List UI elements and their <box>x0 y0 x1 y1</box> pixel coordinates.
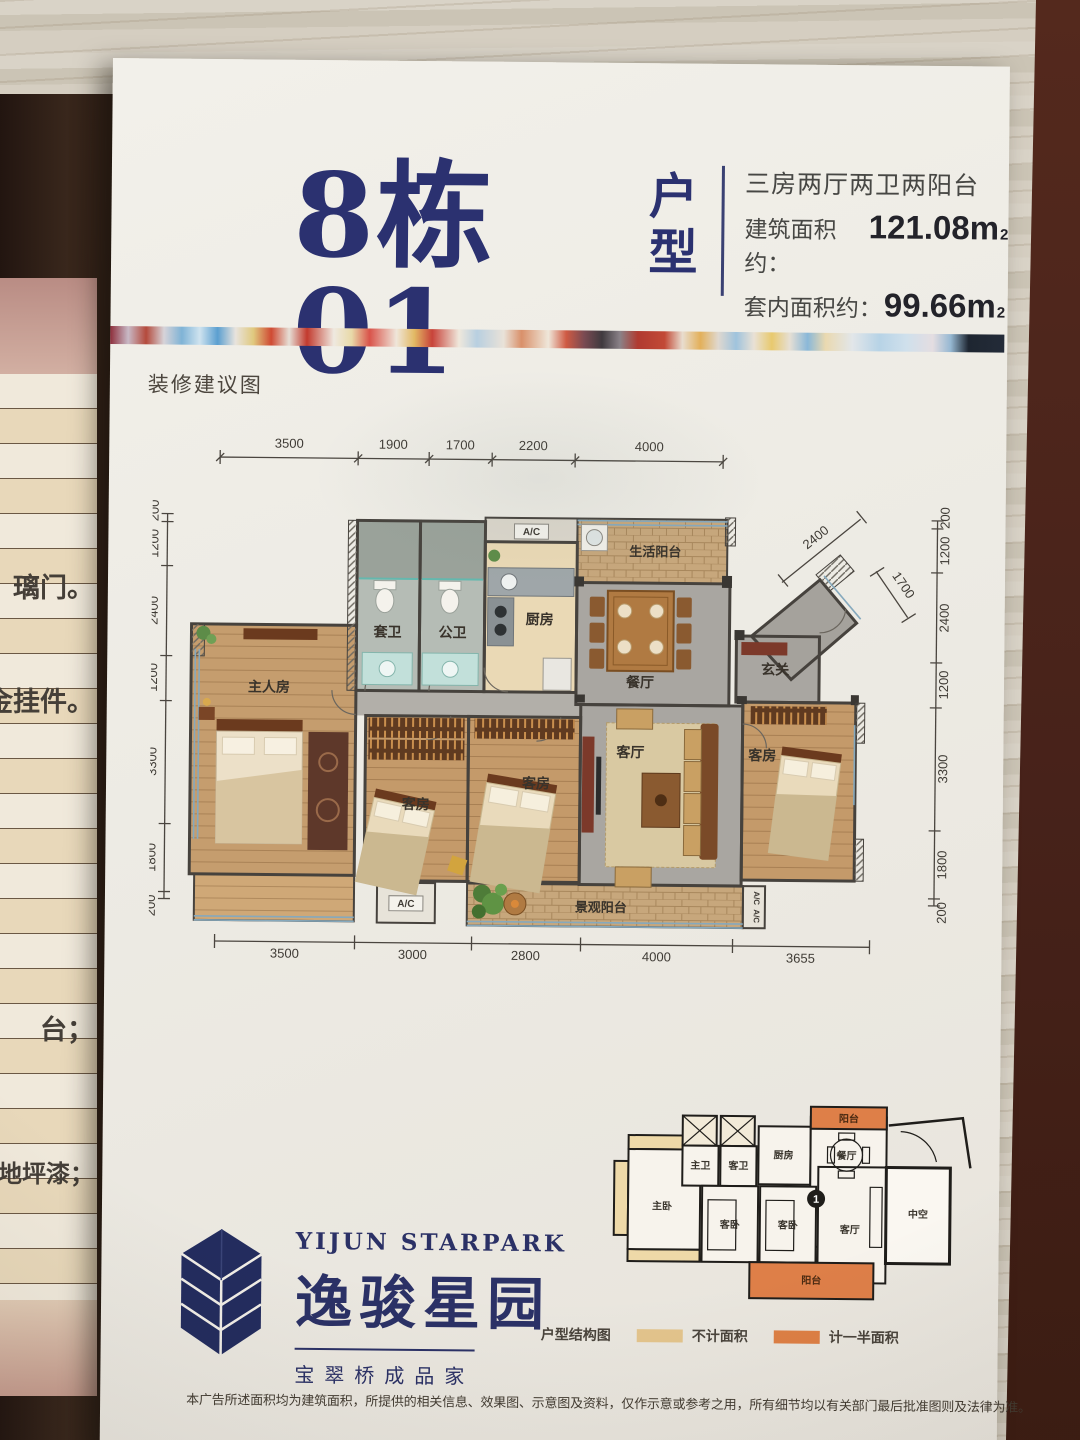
dim-label: 3500 <box>275 436 304 451</box>
spec-block: 三房两厅两卫两阳台 建筑面积约： 121.08m 2 套内面积约： 99.66m… <box>744 164 1009 326</box>
room-label-living: 客厅 <box>615 744 644 760</box>
dim-label: 2800 <box>511 948 540 963</box>
structure-inset: 1 阳台 阳台 主卧 客卧 客卧 客厅 中空 厨房 主卫 客卫 餐厅 <box>569 1100 995 1314</box>
room-label-master: 主人房 <box>248 678 290 694</box>
inset-label-balcony: 阳台 <box>839 1112 859 1125</box>
inset-label-living: 客厅 <box>839 1223 860 1236</box>
inset-label-guest-bath: 客卫 <box>727 1159 748 1172</box>
floor-plan: 主人房 客房 客房 客房 客厅 餐厅 厨房 套卫 公卫 玄关 生活阳台 景观阳台… <box>148 418 953 966</box>
dim-label: 1900 <box>379 437 408 452</box>
dims-right: 200 1200 2400 1200 3300 1800 200 <box>928 507 953 924</box>
unit-title-suffix: 户 型 <box>648 169 698 281</box>
adjacent-poster-strip: 璃门。 金挂件。 台； 地坪漆； <box>0 278 97 1396</box>
disclaimer-text: 本广告所述面积均为建筑面积，所提供的相关信息、效果图、示意图及资料，仅作示意或参… <box>186 1389 1016 1416</box>
unit-title-suffix-char: 户 <box>649 169 699 225</box>
brand-logo: YIJUN STARPARK 逸骏星园 宝翠桥成品家 <box>172 1227 567 1391</box>
spec-gross-value: 121.08m <box>869 208 1000 247</box>
room-label-service-balcony: 生活阳台 <box>629 544 681 559</box>
adjacent-poster-footer <box>0 1300 97 1396</box>
ac-label: A/C <box>752 891 761 905</box>
legend-title: 户型结构图 <box>541 1324 611 1345</box>
inset-label-dining: 餐厅 <box>835 1149 856 1162</box>
inset-label-void: 中空 <box>908 1208 928 1221</box>
dim-label: 1200 <box>148 663 160 692</box>
spec-inner-sup: 2 <box>997 304 1006 321</box>
logo-building-icon <box>173 1227 270 1358</box>
dim-label: 3000 <box>398 947 427 962</box>
unit-title: 8栋01 <box>292 158 640 393</box>
dim-label: 1200 <box>937 536 952 565</box>
dims-left: 200 1200 2400 1200 3300 1800 200 <box>148 499 173 916</box>
title-divider <box>721 166 725 296</box>
room-label-public-bath: 公卫 <box>438 624 466 640</box>
spec-inner-label: 套内面积约： <box>744 288 882 323</box>
dim-label: 200 <box>148 499 161 521</box>
legend-half-label: 计一半面积 <box>829 1327 899 1348</box>
spec-rooms: 三房两厅两卫两阳台 <box>745 164 1009 203</box>
inset-label-balcony: 阳台 <box>801 1274 821 1287</box>
room-label-dining: 餐厅 <box>625 674 654 690</box>
room-label-guest: 客房 <box>401 796 430 812</box>
inset-legend: 户型结构图 不计面积 计一半面积 <box>541 1324 899 1347</box>
dim-label: 1200 <box>148 529 161 558</box>
dims-top: 3500 1900 1700 2200 4000 <box>216 435 727 469</box>
section-label: 装修建议图 <box>148 368 263 399</box>
room-label-foyer: 玄关 <box>761 661 789 677</box>
logo-text-block: YIJUN STARPARK 逸骏星园 宝翠桥成品家 <box>294 1228 567 1391</box>
photo-scene: 璃门。 金挂件。 台； 地坪漆； 8栋01 户 型 三房两厅两卫两阳台 建筑面积… <box>0 0 1080 1440</box>
ac-label: A/C <box>397 899 414 910</box>
logo-name-cn: 逸骏星园 <box>295 1257 567 1342</box>
structure-plan: 1 阳台 阳台 主卧 客卧 客卧 客厅 中空 厨房 主卫 客卫 餐厅 <box>569 1100 991 1314</box>
dim-diagonal-1700: 1700 <box>870 567 919 622</box>
dim-label: 1700 <box>446 437 475 452</box>
dims-bottom: 3500 3000 2800 4000 3655 <box>214 934 869 966</box>
room-label-view-balcony: 景观阳台 <box>575 899 627 914</box>
left-text-fragment: 台； <box>40 1008 94 1047</box>
dim-label: 3655 <box>786 951 815 966</box>
spec-gross-area: 建筑面积约： 121.08m 2 <box>744 207 1008 281</box>
logo-name-en: YIJUN STARPARK <box>296 1228 567 1258</box>
dim-label: 2400 <box>148 596 160 625</box>
dim-label: 200 <box>934 902 949 924</box>
dim-label: 1800 <box>934 850 949 879</box>
legend-excluded-label: 不计面积 <box>692 1326 748 1347</box>
dim-label: 4000 <box>635 439 664 454</box>
dim-label: 3500 <box>270 946 299 961</box>
room-label-guest: 客房 <box>747 747 776 763</box>
left-text-fragment: 璃门。 <box>13 566 94 605</box>
inset-label-master-bath: 主卫 <box>690 1159 710 1172</box>
inset-label-guest: 客卧 <box>777 1218 798 1231</box>
logo-tagline: 宝翠桥成品家 <box>294 1348 474 1390</box>
ac-label: A/C <box>523 527 540 538</box>
dim-label: 3300 <box>148 747 159 776</box>
floor-plan-area: 主人房 客房 客房 客房 客厅 餐厅 厨房 套卫 公卫 玄关 生活阳台 景观阳台… <box>148 418 953 966</box>
spec-inner-value: 99.66m <box>884 286 996 325</box>
dim-label: 3300 <box>935 754 950 783</box>
dim-label: 2400 <box>800 522 832 552</box>
legend-swatch-excluded <box>637 1329 683 1342</box>
room-label-guest: 客房 <box>521 775 550 791</box>
dim-label: 4000 <box>642 949 671 964</box>
unit-number-badge: 1 <box>813 1194 819 1206</box>
inset-label-guest: 客卧 <box>719 1218 740 1231</box>
adjacent-poster-header <box>0 278 97 374</box>
dim-label: 1200 <box>936 670 951 699</box>
left-text-fragment: 地坪漆； <box>0 1154 94 1189</box>
room-label-kitchen: 厨房 <box>526 611 554 627</box>
inset-label-kitchen: 厨房 <box>773 1148 793 1161</box>
dim-label: 200 <box>938 507 953 529</box>
spec-gross-label: 建筑面积约： <box>744 210 867 279</box>
dim-label: 1800 <box>148 843 158 872</box>
unit-title-suffix-char: 型 <box>648 225 698 281</box>
room-label-ensuite-bath: 套卫 <box>373 624 401 640</box>
legend-swatch-half <box>774 1330 820 1343</box>
title-block: 8栋01 户 型 三房两厅两卫两阳台 建筑面积约： 121.08m 2 套内面积… <box>292 158 1009 397</box>
left-text-fragment: 金挂件。 <box>0 680 94 719</box>
spec-inner-area: 套内面积约： 99.66m 2 <box>744 285 1008 326</box>
dim-label: 2200 <box>519 438 548 453</box>
floorplan-poster: 8栋01 户 型 三房两厅两卫两阳台 建筑面积约： 121.08m 2 套内面积… <box>100 58 1010 1440</box>
ac-label: A/C <box>752 909 761 923</box>
inset-label-master: 主卧 <box>652 1199 672 1212</box>
dim-label: 200 <box>148 894 158 916</box>
spec-gross-sup: 2 <box>1000 227 1009 244</box>
dim-label: 2400 <box>937 603 952 632</box>
